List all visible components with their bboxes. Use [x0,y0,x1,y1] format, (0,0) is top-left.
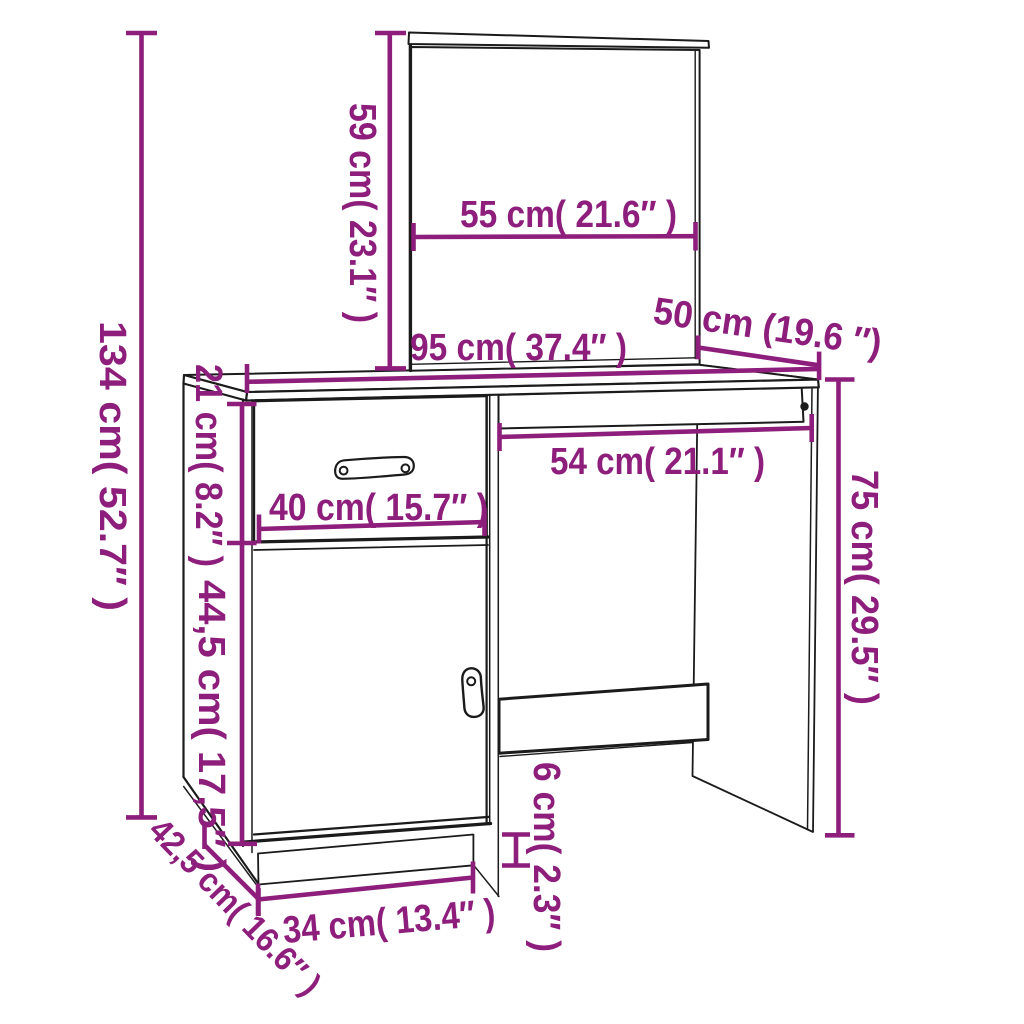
svg-text:59 cm( 23.1″ ): 59 cm( 23.1″ ) [341,103,383,323]
svg-text:40 cm( 15.7″ ): 40 cm( 15.7″ ) [269,487,488,529]
svg-text:54 cm( 21.1″ ): 54 cm( 21.1″ ) [550,441,765,483]
svg-text:6 cm( 2.3″ ): 6 cm( 2.3″ ) [525,762,567,952]
svg-text:55 cm( 21.6″ ): 55 cm( 21.6″ ) [460,194,677,236]
svg-text:75 cm( 29.5″ ): 75 cm( 29.5″ ) [843,470,885,705]
svg-text:95 cm( 37.4″ ): 95 cm( 37.4″ ) [410,327,627,369]
svg-text:21 cm( 8.2″ ): 21 cm( 8.2″ ) [187,364,229,567]
svg-text:44,5 cm( 17,5″ ): 44,5 cm( 17,5″ ) [190,580,232,872]
svg-text:134 cm( 52.7″ ): 134 cm( 52.7″ ) [91,321,133,611]
